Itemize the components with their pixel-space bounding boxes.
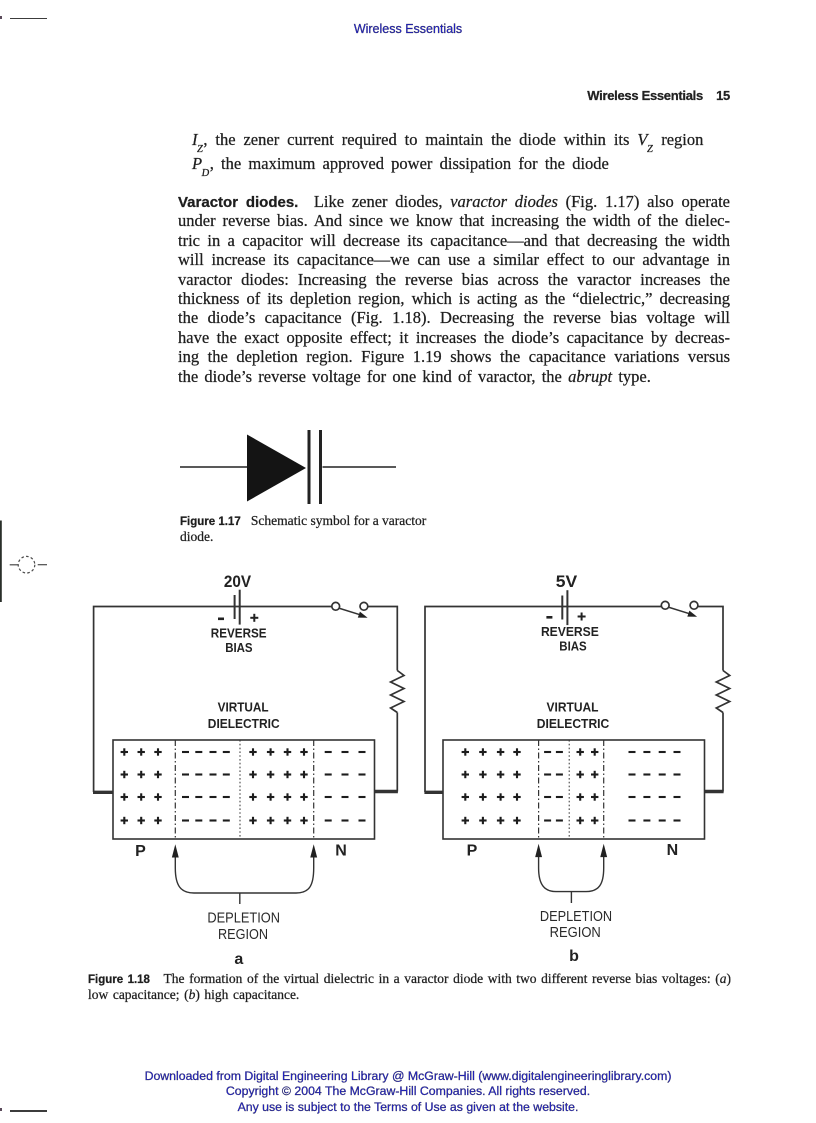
- svg-text:REGION: REGION: [550, 924, 601, 941]
- svg-text:DIELECTRIC: DIELECTRIC: [208, 716, 280, 731]
- svg-text:P: P: [467, 843, 478, 860]
- svg-text:VIRTUAL: VIRTUAL: [547, 700, 599, 715]
- svg-text:P: P: [135, 843, 146, 860]
- svg-text:20V: 20V: [224, 572, 252, 591]
- svg-text:DEPLETION: DEPLETION: [207, 910, 280, 927]
- svg-text:5V: 5V: [556, 572, 578, 591]
- svg-text:BIAS: BIAS: [559, 639, 587, 654]
- svg-text:REVERSE: REVERSE: [541, 624, 599, 639]
- svg-text:REGION: REGION: [218, 926, 268, 943]
- svg-text:VIRTUAL: VIRTUAL: [218, 700, 269, 715]
- svg-text:N: N: [667, 842, 679, 859]
- svg-text:DEPLETION: DEPLETION: [540, 908, 612, 925]
- svg-text:BIAS: BIAS: [225, 640, 253, 655]
- svg-text:N: N: [335, 843, 347, 860]
- svg-text:b: b: [569, 948, 579, 965]
- svg-text:REVERSE: REVERSE: [211, 625, 267, 640]
- svg-text:DIELECTRIC: DIELECTRIC: [537, 716, 610, 731]
- svg-text:a: a: [234, 951, 243, 968]
